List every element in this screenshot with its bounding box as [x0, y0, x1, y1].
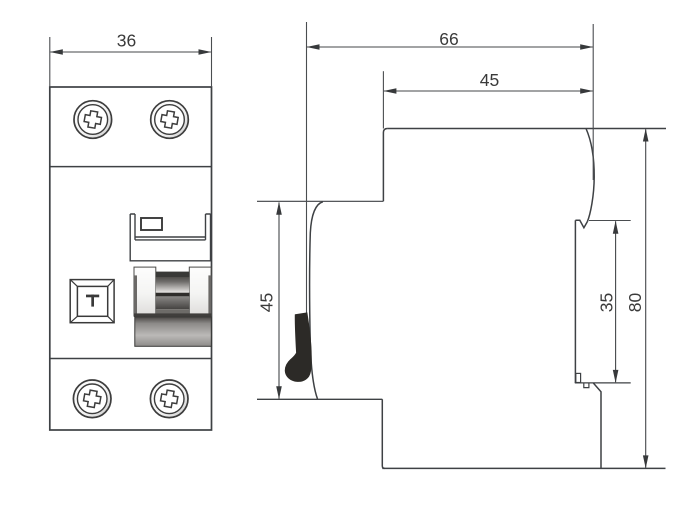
svg-text:80: 80	[625, 293, 645, 313]
svg-text:66: 66	[439, 29, 458, 49]
svg-text:36: 36	[117, 31, 136, 51]
svg-text:35: 35	[597, 293, 617, 312]
svg-text:45: 45	[257, 293, 277, 312]
svg-text:45: 45	[480, 70, 499, 90]
